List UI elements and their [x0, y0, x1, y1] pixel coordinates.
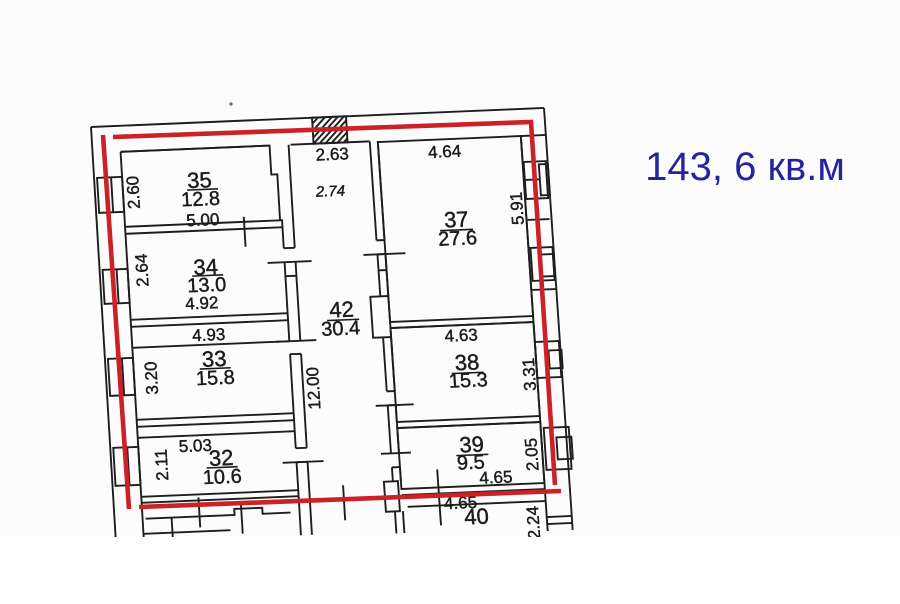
- svg-text:4.64: 4.64: [428, 142, 462, 162]
- svg-text:15.8: 15.8: [195, 367, 235, 391]
- svg-text:10.6: 10.6: [202, 466, 242, 490]
- svg-text:4.93: 4.93: [192, 325, 226, 345]
- svg-text:2.63: 2.63: [315, 144, 349, 164]
- svg-text:2.05: 2.05: [521, 438, 542, 472]
- svg-text:2.60: 2.60: [123, 175, 144, 209]
- svg-text:40: 40: [463, 503, 489, 529]
- svg-text:12.8: 12.8: [181, 188, 221, 212]
- svg-text:2.64: 2.64: [132, 253, 153, 287]
- svg-text:3.31: 3.31: [519, 357, 540, 391]
- svg-text:15.3: 15.3: [448, 369, 488, 393]
- svg-text:30.4: 30.4: [321, 317, 361, 341]
- svg-text:2.24: 2.24: [523, 506, 544, 540]
- svg-text:2.74: 2.74: [314, 183, 345, 201]
- svg-text:4.92: 4.92: [185, 293, 219, 313]
- svg-text:4.65: 4.65: [479, 467, 513, 487]
- svg-text:143, 6 кв.м: 143, 6 кв.м: [645, 145, 845, 189]
- svg-text:27.6: 27.6: [437, 227, 477, 251]
- svg-text:4.63: 4.63: [444, 325, 478, 345]
- svg-text:12.00: 12.00: [303, 367, 325, 410]
- svg-text:3.20: 3.20: [141, 361, 162, 395]
- svg-text:5.91: 5.91: [507, 191, 528, 225]
- svg-text:5.00: 5.00: [186, 210, 220, 230]
- svg-text:2.11: 2.11: [151, 449, 172, 482]
